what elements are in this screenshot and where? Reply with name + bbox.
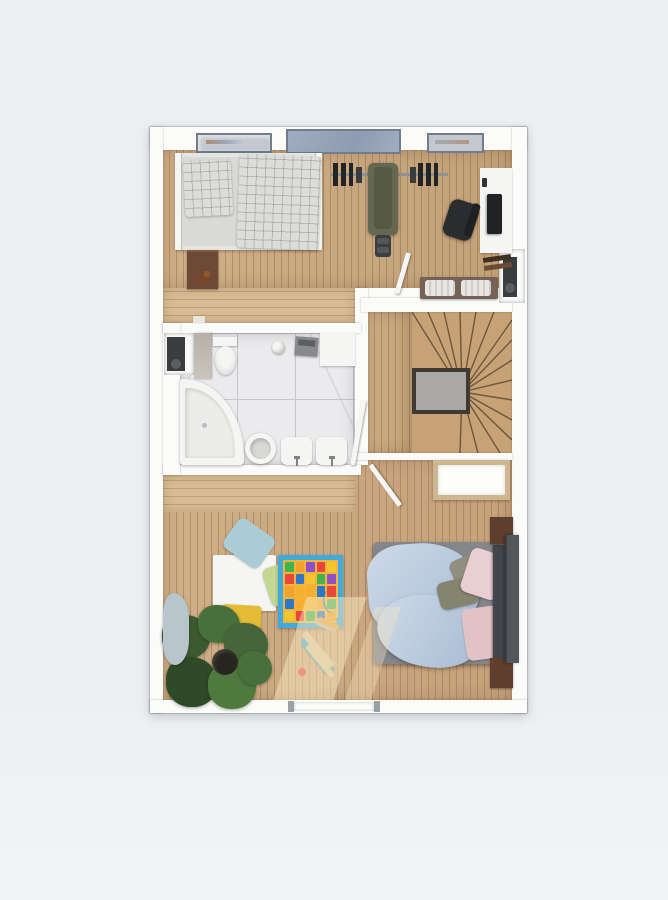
- bench-foot-rack: [375, 235, 391, 257]
- beanbag: [163, 593, 189, 665]
- weight-plates-right: [418, 163, 438, 186]
- play-mat-tile: [285, 586, 294, 596]
- bed-headboard-bar: [175, 153, 181, 250]
- monitor: [487, 194, 502, 234]
- play-mat-tile: [327, 574, 336, 584]
- play-mat-tile: [327, 562, 336, 572]
- concrete-partition: [194, 333, 211, 379]
- wall-stairwell-bottom: [355, 453, 512, 460]
- roof-window-middle: [286, 129, 401, 154]
- checkered-pillow: [183, 159, 234, 217]
- radiator-bathroom: [167, 337, 185, 371]
- barbell-stand-left: [356, 167, 362, 183]
- window-right: [427, 133, 484, 153]
- keyboard: [482, 178, 487, 187]
- barbell-stand-right: [410, 167, 416, 183]
- play-mat-tile: [296, 586, 305, 596]
- toilet-bowl: [215, 346, 236, 375]
- weight-bench: [368, 163, 398, 235]
- vanity-cabinet: [320, 333, 355, 366]
- checkered-blanket: [236, 154, 321, 251]
- bench-cushion: [461, 280, 491, 296]
- foot-pad: [377, 238, 389, 244]
- bathtub-drain: [202, 423, 207, 428]
- play-mat-tile: [285, 562, 294, 572]
- basin-bowl: [250, 438, 271, 459]
- radiator-valve: [505, 283, 515, 293]
- storage-bench: [420, 277, 498, 299]
- weight-plates-left: [333, 163, 353, 186]
- desk-shelf: [483, 254, 512, 272]
- doormat: [193, 316, 205, 323]
- window-post: [288, 701, 294, 712]
- foot-pad: [377, 247, 389, 253]
- bidet: [281, 437, 312, 465]
- hallway-floor: [163, 288, 355, 323]
- play-mat-tile: [306, 562, 315, 572]
- office-chair: [442, 195, 480, 247]
- window-decor: [435, 140, 469, 144]
- stair-landing-floor: [368, 312, 412, 453]
- wall-stairwell-top: [361, 298, 512, 312]
- plant-foliage: [238, 651, 272, 685]
- toy-head: [204, 271, 210, 277]
- bidet-tap: [296, 458, 298, 466]
- window-post: [374, 701, 380, 712]
- towel-roll: [272, 341, 285, 354]
- plant-pot: [212, 649, 238, 675]
- play-mat-tile: [317, 562, 326, 572]
- bench-pad: [374, 167, 392, 229]
- radiator-valve: [171, 359, 181, 369]
- toilet: [212, 337, 238, 377]
- window-bottom: [286, 700, 382, 713]
- wall-bathroom-top: [163, 323, 361, 333]
- window-glass: [294, 702, 374, 711]
- play-mat-tile: [285, 574, 294, 584]
- crib: [433, 460, 510, 500]
- winder-stairs: [412, 312, 512, 453]
- wall-bathroom-bottom: [163, 465, 361, 475]
- single-bed: [175, 153, 322, 250]
- toilet-tank: [213, 337, 237, 346]
- window-decor: [206, 140, 246, 144]
- towel-shelf: [294, 336, 318, 357]
- floor-plan: [150, 127, 527, 713]
- round-basin: [245, 433, 276, 464]
- play-mat-tile: [317, 574, 326, 584]
- tv-panel: [505, 535, 519, 663]
- bench-cushion: [425, 280, 455, 296]
- shelf-board-mid: [484, 262, 512, 271]
- stair-opening: [414, 370, 468, 412]
- washbasin-tap: [331, 458, 333, 466]
- play-mat-tile: [285, 599, 294, 609]
- play-mat-tile: [296, 574, 305, 584]
- towel: [298, 339, 315, 346]
- wooden-toy: [194, 271, 210, 286]
- washbasin: [316, 437, 347, 465]
- walkway-floor: [163, 475, 355, 512]
- play-mat-tile: [296, 562, 305, 572]
- window-left: [196, 133, 272, 153]
- play-mat-tile: [285, 611, 294, 621]
- play-mat-tile: [306, 574, 315, 584]
